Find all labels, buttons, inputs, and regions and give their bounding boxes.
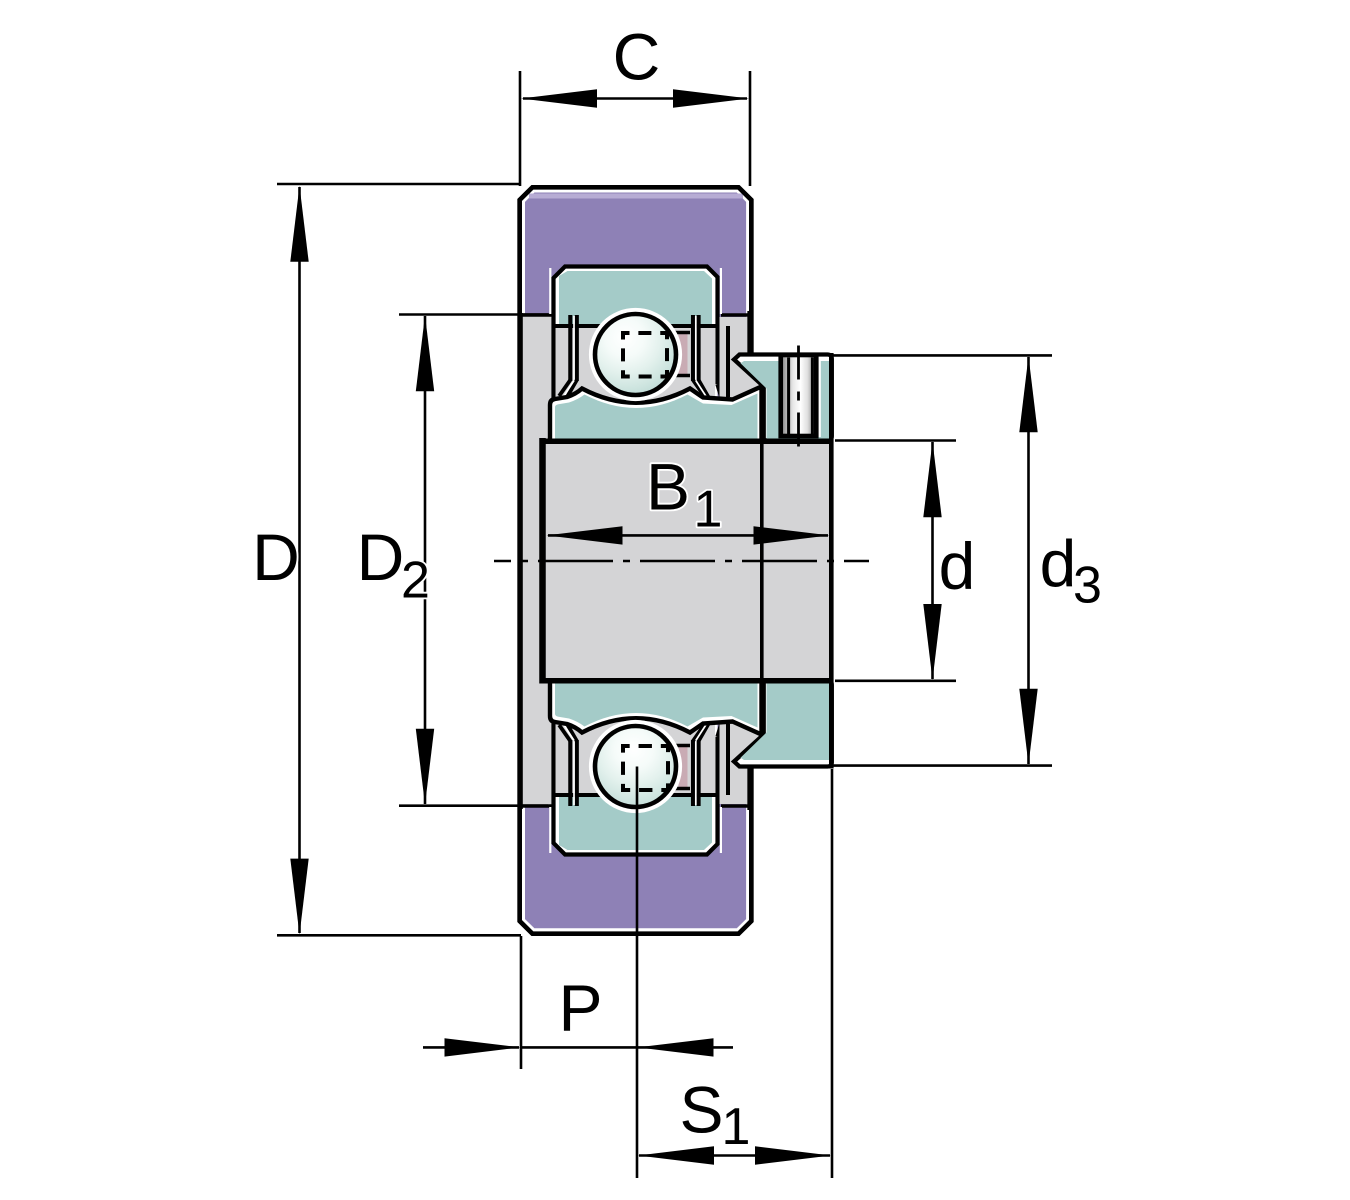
svg-text:2: 2 (401, 552, 430, 610)
svg-text:1: 1 (694, 481, 723, 539)
svg-text:3: 3 (1073, 557, 1102, 615)
svg-text:d: d (939, 529, 976, 603)
svg-text:P: P (558, 971, 602, 1045)
svg-text:1: 1 (722, 1098, 751, 1156)
svg-text:d: d (1040, 527, 1077, 601)
svg-text:D: D (357, 520, 405, 594)
svg-text:D: D (252, 520, 300, 594)
svg-text:C: C (613, 20, 661, 94)
svg-text:S: S (679, 1073, 723, 1147)
svg-text:B: B (646, 450, 690, 524)
